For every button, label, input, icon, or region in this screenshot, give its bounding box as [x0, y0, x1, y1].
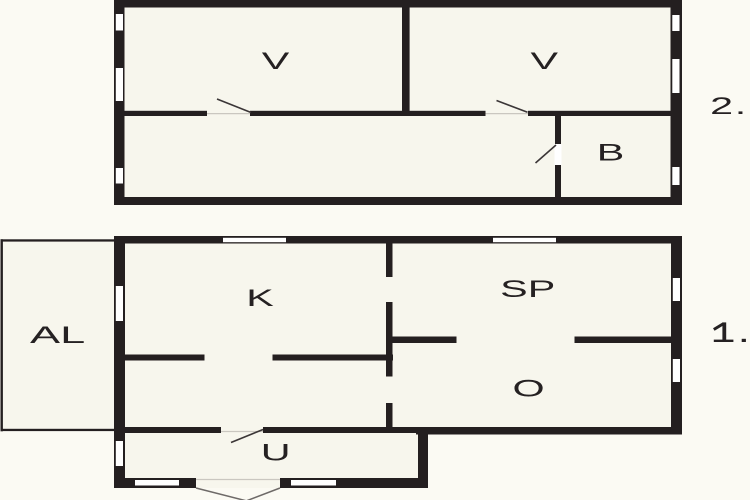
svg-text:U: U [261, 439, 291, 466]
svg-text:V: V [531, 48, 559, 75]
svg-text:2.: 2. [710, 93, 748, 120]
svg-text:B: B [597, 139, 625, 166]
svg-text:V: V [262, 48, 290, 75]
svg-text:SP: SP [500, 276, 555, 303]
svg-text:O: O [512, 375, 544, 402]
svg-text:K: K [246, 285, 274, 312]
svg-text:AL: AL [30, 321, 85, 348]
